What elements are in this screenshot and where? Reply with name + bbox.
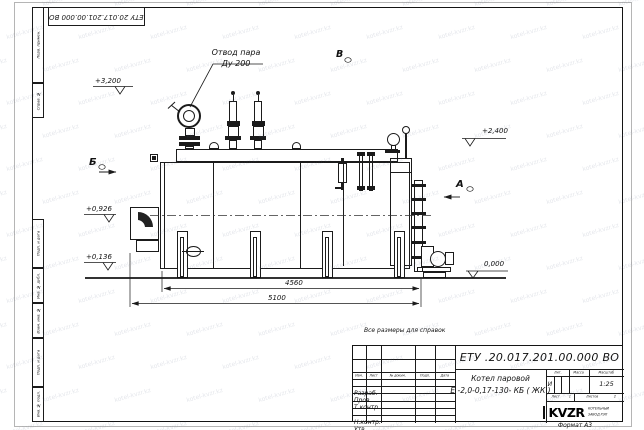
col-dokum: № докум. xyxy=(390,374,406,377)
support-leg xyxy=(250,231,261,278)
watermark-text: kotel-kvzr.kz xyxy=(0,123,8,140)
row-utv: Утв. xyxy=(354,426,367,430)
watermark-text: kotel-kvzr.kz xyxy=(0,321,8,338)
kvzr-logo-text: KVZR xyxy=(548,405,584,420)
tb-line xyxy=(415,346,416,423)
dimension-label-4560: 4560 xyxy=(285,280,303,287)
steam-outlet-label-line2: Ду 200 xyxy=(207,60,265,68)
col-data: Дата xyxy=(441,374,449,377)
format-label: Формат А3 xyxy=(545,423,605,429)
elevation-label-0926: +0,926 xyxy=(86,206,112,213)
front-stub-core xyxy=(152,156,156,160)
logo-cell: KVZR КОТЕЛЬНЫЙ ЗАВОД РЭП xyxy=(546,401,624,423)
level-gauge-bottom-stem xyxy=(341,183,344,190)
reference-note: Все размеры для справок xyxy=(364,328,445,334)
col-izm: Изм. xyxy=(356,374,364,377)
dimension-label-5100: 5100 xyxy=(268,295,286,302)
safety-valve-spring-housing xyxy=(254,101,262,122)
product-name-line2: Е -2,0-0,17-130- КБ ( ЖК ) xyxy=(450,387,550,395)
burner-box xyxy=(130,207,159,240)
top-doc-number-box: ЕТУ 20.017.201.00.000 ВО xyxy=(48,7,145,26)
column-flange xyxy=(411,241,426,244)
product-name-line1: Котел паровой xyxy=(471,375,530,383)
tb-line xyxy=(435,346,436,423)
elevation-label-3200: +3,200 xyxy=(95,78,121,85)
support-leg-inner xyxy=(397,237,401,277)
strip-sprav-no: Справ. № xyxy=(32,83,44,118)
strip-podp-data-1: Подп. и дата xyxy=(32,219,44,268)
level-gauge2-cap xyxy=(367,186,375,190)
drum-nozzle-dome xyxy=(292,142,301,149)
manhole-centerline xyxy=(182,251,204,252)
lit-value: И xyxy=(548,382,553,388)
support-leg-inner xyxy=(253,237,257,277)
strip-vzam-inv: Взам. инв. № xyxy=(32,303,44,338)
scale-label: Масштаб xyxy=(599,371,614,374)
kvzr-logo-subtext: КОТЕЛЬНЫЙ ЗАВОД РЭП xyxy=(588,406,627,418)
drum-end-valve-flange xyxy=(385,150,400,153)
lit-label: Лит. xyxy=(554,371,561,374)
col-list: Лист xyxy=(369,374,377,377)
blower-pedestal xyxy=(423,272,446,278)
strip-inv-podl: Инв. № подл. xyxy=(32,387,44,422)
column-flange xyxy=(411,198,426,201)
safety-valve-base xyxy=(229,140,237,149)
view-marker-a: А xyxy=(456,180,464,190)
strip-inv-dubl: Инв. № дубл. xyxy=(32,268,44,303)
elevation-label-2400: +2,400 xyxy=(482,128,508,135)
sheet-value: 1 xyxy=(569,395,571,398)
view-marker-b: Б xyxy=(89,158,97,168)
scale-value: 1:25 xyxy=(599,381,614,388)
safety-valve-spring-housing xyxy=(229,101,237,122)
doc-number: ЕТУ .20.017.201.00.000 ВО xyxy=(460,352,620,363)
mass-label: Масса xyxy=(574,371,584,374)
drum-nozzle-dome xyxy=(209,142,219,149)
level-gauge-cylinder xyxy=(338,163,347,183)
column-flange xyxy=(411,226,426,229)
blower-outlet-box xyxy=(445,252,454,265)
steam-outlet-label-line1: Отвод пара xyxy=(207,49,265,57)
watermark-text: kotel-kvzr.kz xyxy=(0,0,8,8)
boiler-front-inner-wall xyxy=(164,162,165,269)
sheet-label: Лист xyxy=(552,395,560,398)
body-panel-line-1 xyxy=(213,162,214,269)
tb-line xyxy=(561,376,562,393)
tb-line xyxy=(353,359,455,360)
elevation-label-0000: 0,000 xyxy=(484,261,504,268)
top-doc-number: ЕТУ 20.017.201.00.000 ВО xyxy=(49,13,144,21)
tb-line xyxy=(554,376,555,393)
support-leg-inner xyxy=(180,237,184,277)
col-podp: Подп. xyxy=(420,374,430,377)
drawing-sheet: ЕТУ 20.017.201.00.000 ВО Перв. примен. С… xyxy=(0,0,644,430)
column-flange xyxy=(411,212,426,215)
level-gauge-handle xyxy=(335,187,341,189)
body-panel-line-2 xyxy=(300,162,301,269)
watermark-text: kotel-kvzr.kz xyxy=(0,57,8,74)
watermark-text: kotel-kvzr.kz xyxy=(0,387,8,404)
safety-valve-base xyxy=(254,140,262,149)
sheets-label: Листов xyxy=(586,395,598,398)
view-marker-v: В xyxy=(336,50,343,60)
title-block: Изм. Лист № докум. Подп. Дата Разраб. Пр… xyxy=(352,345,623,422)
support-leg xyxy=(394,231,405,278)
steam-valve-base xyxy=(185,146,194,149)
steam-valve-wheel-hub xyxy=(183,110,195,122)
support-leg-inner xyxy=(325,237,329,277)
watermark-text: kotel-kvzr.kz xyxy=(0,189,8,206)
product-name-cell: Котел паровой Е -2,0-0,17-130- КБ ( ЖК ) xyxy=(455,369,546,423)
steam-valve-neck xyxy=(185,128,195,136)
rear-ball-fitting-stem xyxy=(405,133,407,158)
rear-smoke-box-line xyxy=(390,172,412,173)
column-flange xyxy=(411,184,426,187)
kvzr-logo-icon xyxy=(543,406,545,419)
blower-scroll xyxy=(430,251,446,267)
sheets-value: 2 xyxy=(614,395,616,398)
strip-podp-data-2: Подп. и дата xyxy=(32,338,44,387)
level-gauge2-cap xyxy=(357,186,365,190)
elevation-label-0136: +0,136 xyxy=(86,254,112,261)
steam-valve-flange-upper xyxy=(179,136,200,140)
watermark-text: kotel-kvzr.kz xyxy=(0,255,8,272)
support-leg xyxy=(322,231,333,278)
burner-lower-step xyxy=(136,240,159,252)
strip-perv-primen: Перв. примен. xyxy=(32,7,44,83)
